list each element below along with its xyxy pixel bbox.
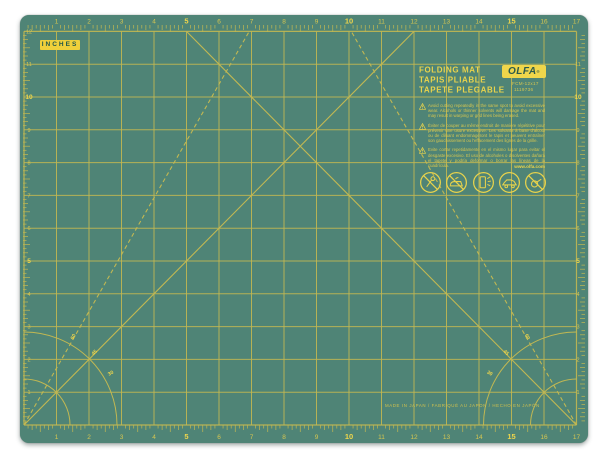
svg-text:11: 11 bbox=[378, 434, 385, 441]
warning-triangle-icon bbox=[419, 103, 426, 110]
angle-arcs bbox=[24, 332, 577, 425]
svg-text:15: 15 bbox=[507, 432, 515, 441]
svg-text:8: 8 bbox=[282, 434, 286, 441]
svg-text:17: 17 bbox=[573, 19, 581, 26]
no-heat-source-icon bbox=[524, 171, 547, 194]
svg-text:3: 3 bbox=[120, 19, 124, 26]
svg-text:9: 9 bbox=[315, 434, 319, 441]
hot-car-warning-icon bbox=[498, 171, 521, 194]
sunlight-warning-icon bbox=[472, 171, 495, 194]
svg-text:17: 17 bbox=[573, 434, 581, 441]
svg-text:3: 3 bbox=[120, 434, 124, 441]
svg-text:5: 5 bbox=[27, 258, 31, 265]
warning-text: Éviter de couper au même endroit de mani… bbox=[428, 123, 545, 144]
registered-mark: ® bbox=[537, 69, 540, 74]
svg-text:2: 2 bbox=[87, 434, 91, 441]
info-block: FOLDING MAT TAPIS PLIABLE TAPETE PLEGABL… bbox=[419, 65, 545, 95]
svg-text:4: 4 bbox=[152, 434, 156, 441]
svg-text:4: 4 bbox=[152, 19, 156, 26]
svg-text:30: 30 bbox=[107, 370, 115, 378]
svg-text:11: 11 bbox=[26, 62, 32, 68]
svg-text:30: 30 bbox=[486, 370, 494, 378]
svg-text:8: 8 bbox=[576, 161, 579, 167]
svg-text:5: 5 bbox=[184, 432, 188, 441]
svg-text:12: 12 bbox=[410, 434, 418, 441]
warning-triangle-icon bbox=[419, 147, 426, 154]
svg-text:6: 6 bbox=[576, 226, 579, 232]
warning-paragraphs: Avoid cutting repeatedly in the same spo… bbox=[419, 103, 545, 172]
website-url: www.olfa.com bbox=[419, 164, 545, 169]
svg-text:3: 3 bbox=[576, 325, 579, 331]
svg-text:9: 9 bbox=[315, 19, 319, 26]
svg-text:12: 12 bbox=[410, 19, 418, 26]
svg-text:7: 7 bbox=[27, 193, 30, 199]
svg-text:10: 10 bbox=[25, 94, 33, 101]
svg-text:8: 8 bbox=[282, 19, 286, 26]
svg-text:9: 9 bbox=[576, 128, 579, 134]
care-icons-row bbox=[419, 171, 547, 194]
warning-en: Avoid cutting repeatedly in the same spo… bbox=[419, 103, 545, 119]
svg-text:11: 11 bbox=[378, 19, 385, 26]
svg-text:14: 14 bbox=[475, 19, 483, 26]
svg-text:5: 5 bbox=[576, 258, 580, 265]
warning-triangle-icon bbox=[419, 123, 426, 130]
svg-text:6: 6 bbox=[27, 226, 30, 232]
svg-text:2: 2 bbox=[576, 357, 579, 363]
svg-text:11: 11 bbox=[575, 62, 581, 68]
svg-text:9: 9 bbox=[27, 128, 30, 134]
made-in-text: MADE IN JAPAN / FABRIQUÉ AU JAPON / HECH… bbox=[385, 403, 540, 408]
svg-text:60: 60 bbox=[523, 333, 531, 341]
svg-text:16: 16 bbox=[540, 434, 548, 441]
svg-text:4: 4 bbox=[576, 292, 579, 298]
angle-labels: 304560304560 bbox=[70, 333, 531, 378]
inches-label: INCHES bbox=[40, 40, 80, 50]
svg-text:7: 7 bbox=[250, 19, 254, 26]
brand-name: OLFA bbox=[508, 66, 537, 77]
svg-text:14: 14 bbox=[475, 434, 483, 441]
svg-text:1: 1 bbox=[27, 390, 30, 396]
svg-text:12: 12 bbox=[26, 29, 32, 35]
svg-text:16: 16 bbox=[540, 19, 548, 26]
svg-text:60: 60 bbox=[70, 333, 78, 341]
no-pins-icon bbox=[419, 171, 442, 194]
item-number: 1119736 bbox=[514, 87, 533, 92]
svg-text:1: 1 bbox=[55, 19, 59, 26]
svg-text:6: 6 bbox=[217, 19, 221, 26]
warning-fr: Éviter de couper au même endroit de mani… bbox=[419, 123, 545, 144]
cutting-mat: 1234567891011121314151617123456789101112… bbox=[20, 15, 588, 443]
svg-text:3: 3 bbox=[27, 325, 30, 331]
svg-text:2: 2 bbox=[27, 357, 30, 363]
svg-text:15: 15 bbox=[507, 17, 515, 26]
svg-text:5: 5 bbox=[184, 17, 188, 26]
svg-text:6: 6 bbox=[217, 434, 221, 441]
svg-text:13: 13 bbox=[443, 434, 451, 441]
svg-text:4: 4 bbox=[27, 292, 30, 298]
warning-text: Avoid cutting repeatedly in the same spo… bbox=[428, 103, 545, 118]
svg-text:13: 13 bbox=[443, 19, 451, 26]
product-photo: 1234567891011121314151617123456789101112… bbox=[0, 0, 600, 466]
svg-text:10: 10 bbox=[345, 432, 353, 441]
svg-text:1: 1 bbox=[576, 390, 579, 396]
svg-text:1: 1 bbox=[55, 434, 59, 441]
svg-text:7: 7 bbox=[250, 434, 254, 441]
no-iron-icon bbox=[445, 171, 468, 194]
svg-text:2: 2 bbox=[87, 19, 91, 26]
model-number: FCM-12x17 bbox=[512, 81, 539, 86]
svg-text:7: 7 bbox=[576, 193, 579, 199]
svg-text:8: 8 bbox=[27, 161, 30, 167]
svg-text:10: 10 bbox=[345, 17, 353, 26]
svg-text:10: 10 bbox=[574, 94, 582, 101]
olfa-logo: OLFA® bbox=[502, 65, 546, 78]
